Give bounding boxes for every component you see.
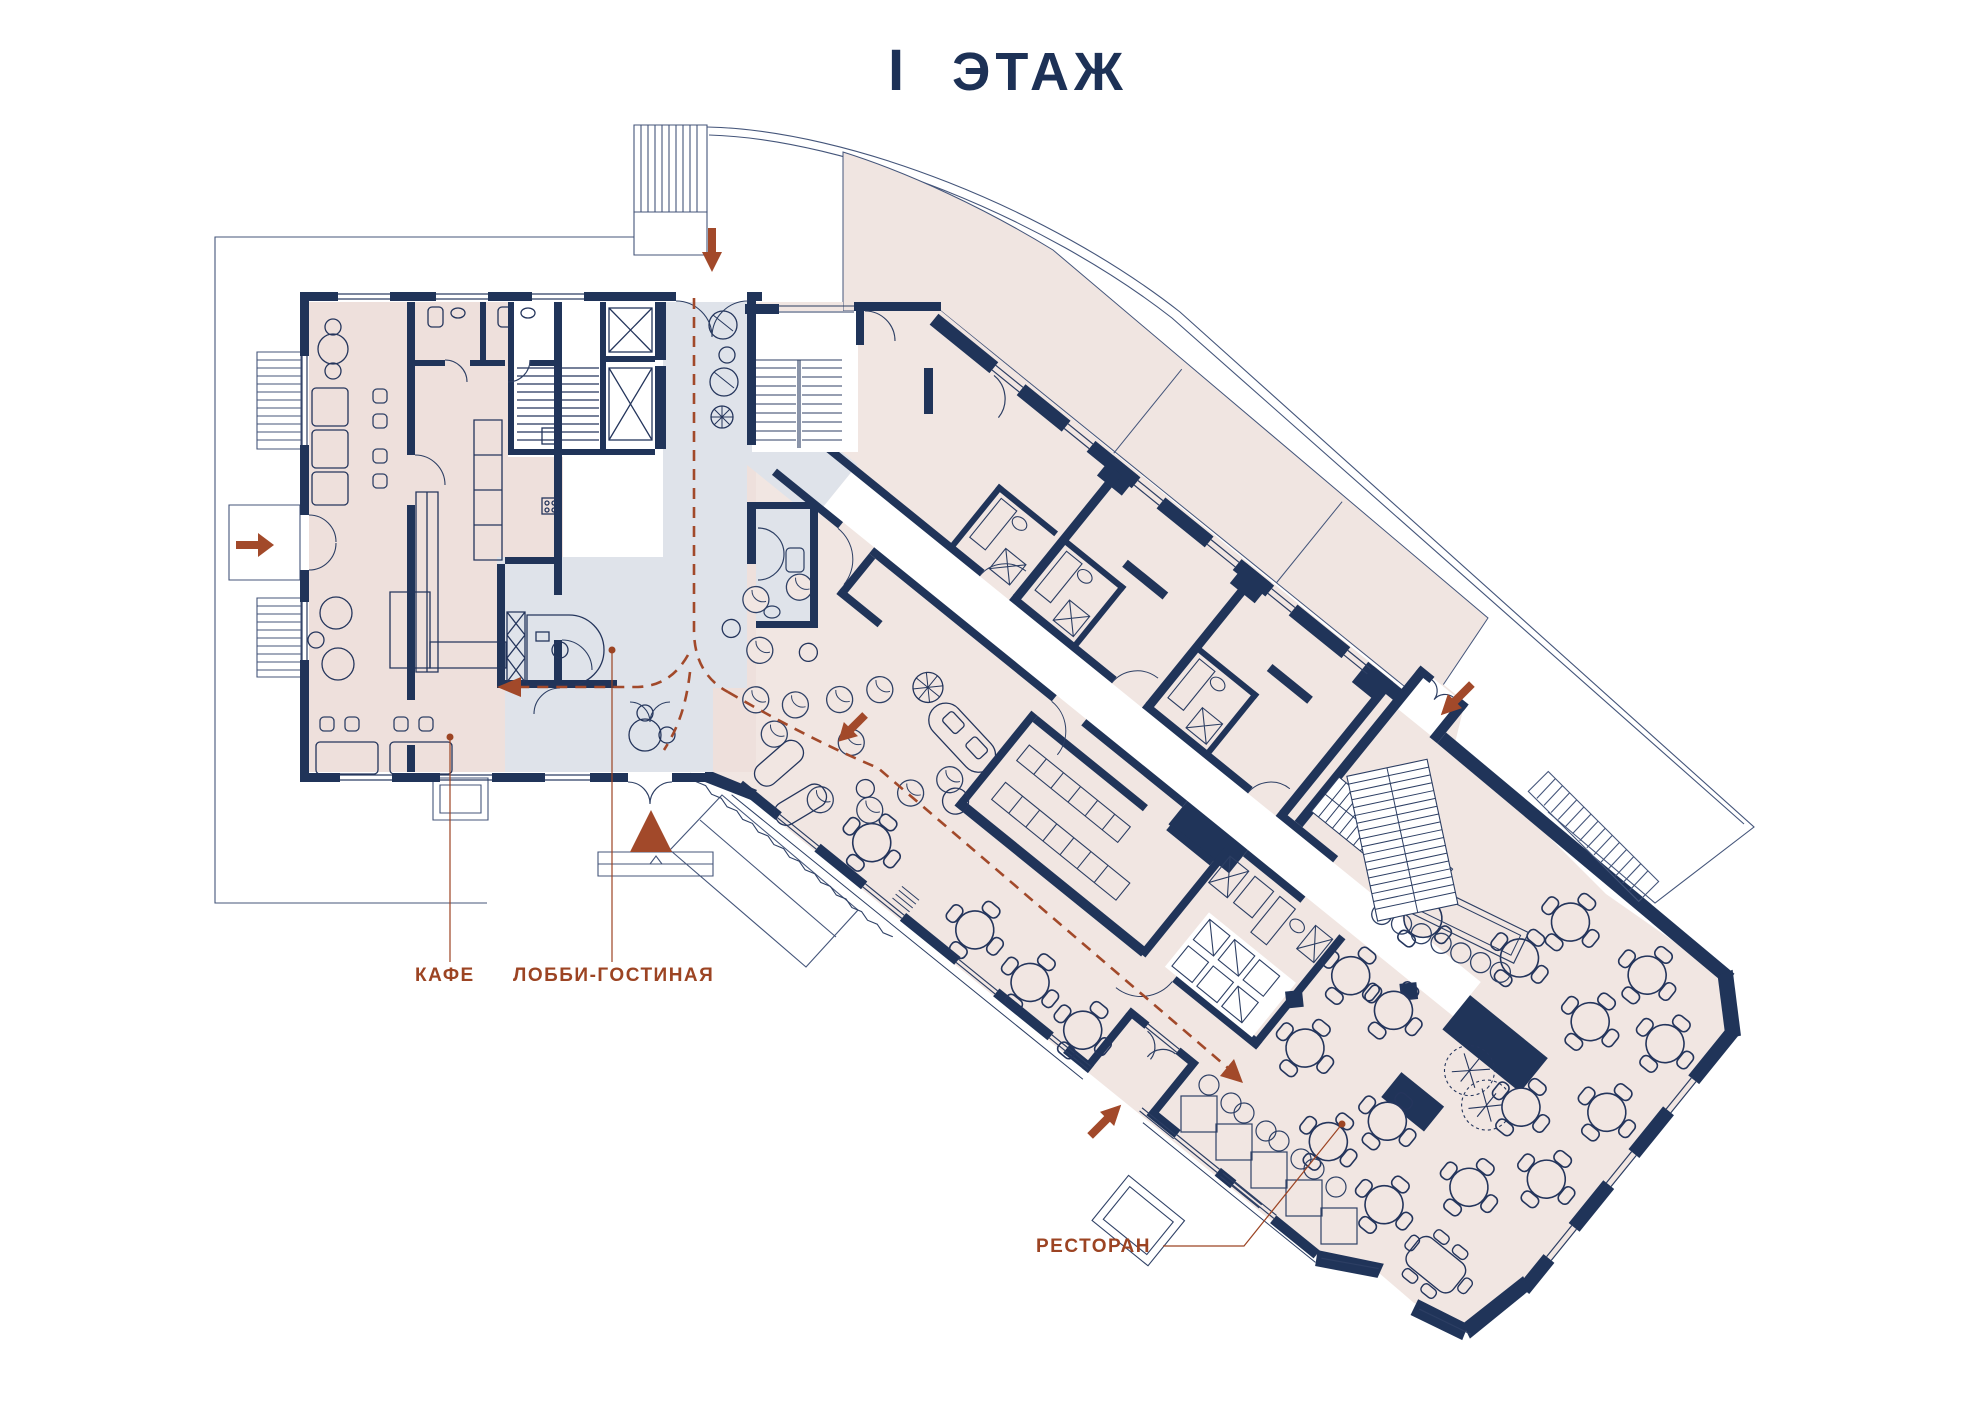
svg-text:I: I	[888, 38, 904, 103]
svg-text:ЛОББИ-ГОСТИНАЯ: ЛОББИ-ГОСТИНАЯ	[513, 965, 714, 986]
svg-text:РЕСТОРАН: РЕСТОРАН	[1036, 1236, 1151, 1257]
svg-text:ЭТАЖ: ЭТАЖ	[952, 42, 1128, 102]
svg-text:КАФЕ: КАФЕ	[415, 965, 475, 986]
